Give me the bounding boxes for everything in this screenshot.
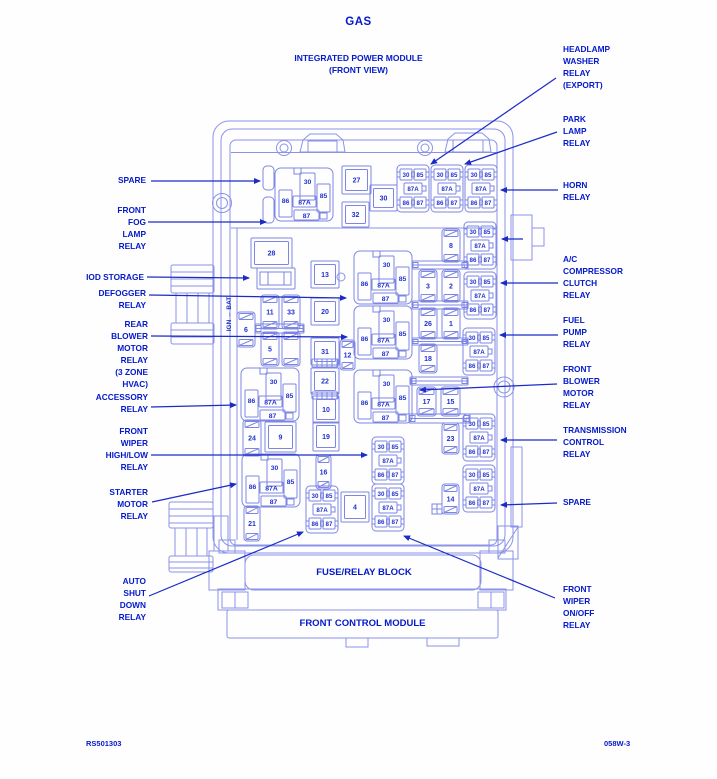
drawing-number-left: RS501303 [86, 739, 121, 748]
screw-icon [418, 141, 433, 156]
blade-fuse-26: 26 [419, 308, 437, 339]
fuse-number: 18 [424, 356, 432, 363]
front-control-module-label: FRONT CONTROL MODULE [227, 618, 498, 629]
label-text: LAMP [563, 126, 587, 136]
bottom-assembly [209, 540, 513, 647]
label-text: DEFOGGER [99, 288, 146, 298]
pin-label: 30 [437, 172, 444, 179]
pin-label: 30 [469, 335, 476, 342]
fuse-number: 2 [449, 283, 453, 290]
fuse-number: 23 [447, 436, 455, 443]
fuse-box-diagram: 2732302813203122101994113365832261181715… [0, 0, 717, 779]
label-text: FUEL [563, 315, 585, 325]
pin-label: 87A [473, 349, 485, 356]
relay-label-iod-storage: IOD STORAGE [86, 272, 144, 282]
label-text: HORN [563, 180, 587, 190]
leader-auto-shut-down-relay [149, 532, 303, 596]
label-text: RELAY [119, 241, 147, 251]
mini-relay-1: 308687A8587 [275, 168, 333, 221]
label-text: RELAY [563, 290, 591, 300]
pin-label: 87 [382, 351, 390, 358]
pin-label: 85 [392, 491, 399, 498]
connector-neck [176, 293, 209, 323]
pin-label: 86 [471, 200, 478, 207]
fuse-number: 19 [322, 434, 330, 441]
pin-label: 87 [269, 413, 277, 420]
leader-defogger-relay [149, 295, 346, 298]
label-text: MOTOR [117, 343, 148, 353]
relay-label-defogger-relay: DEFOGGERRELAY [99, 288, 147, 310]
pin-label: 87A [264, 400, 277, 407]
label-text: RELAY [563, 400, 591, 410]
mini-relay-5: 308687A8587 [241, 368, 299, 421]
interior-components: 2732302813203122101994113365832261181715… [226, 165, 497, 541]
label-text: RELAY [563, 620, 591, 630]
pin-label: 85 [484, 279, 491, 286]
label-text: TRANSMISSION [563, 425, 627, 435]
label-text: COMPRESSOR [563, 266, 623, 276]
label-text: MOTOR [563, 388, 594, 398]
blade-fuse-23: 23 [442, 423, 459, 454]
label-text: HIGH/LOW [106, 450, 149, 460]
pin-label: 86 [437, 200, 444, 207]
pin-label: 87 [483, 500, 490, 507]
pin-label: 87 [270, 499, 278, 506]
end-bracket [209, 551, 245, 590]
square-fuse-28: 28 [251, 238, 292, 268]
pin-label: 86 [249, 484, 257, 491]
pin-label: 30 [470, 279, 477, 286]
ribbed-connector [169, 556, 213, 572]
pin-label: 30 [383, 262, 391, 269]
fuse-number: 24 [248, 435, 256, 442]
fuse-number: 31 [321, 349, 329, 356]
ribbed-connector [171, 323, 214, 344]
pin-label: 86 [378, 519, 385, 526]
pin-label: 30 [403, 172, 410, 179]
label-text: PARK [563, 114, 586, 124]
top-tab [300, 134, 345, 152]
label-text: SPARE [118, 175, 146, 185]
fuse-number: 8 [449, 243, 453, 250]
square-fuse-32: 32 [342, 202, 369, 227]
pin-label: 87 [303, 213, 311, 220]
spare-slot [263, 166, 274, 190]
pin-label: 30 [312, 493, 319, 500]
label-text: SPARE [563, 497, 591, 507]
pin-label: 87A [316, 507, 328, 514]
blade-fuse-17: 17 [417, 387, 436, 416]
label-text: FRONT [119, 426, 148, 436]
pin-label: 87 [483, 449, 490, 456]
pin-label: 85 [326, 493, 333, 500]
bus-bar [410, 377, 468, 385]
leader-accessory-relay [151, 405, 236, 407]
pin-label: 85 [483, 472, 490, 479]
pin-label: 85 [399, 276, 407, 283]
micro-relay-4: 308587A8687 [464, 222, 496, 269]
label-text: CLUTCH [563, 278, 597, 288]
micro-relay-1: 308587A8687 [397, 165, 429, 212]
pin-label: 30 [470, 229, 477, 236]
pin-label: 87 [485, 200, 492, 207]
blade-fuse-21: 21 [244, 506, 260, 541]
pin-label: 85 [392, 444, 399, 451]
pin-label: 86 [361, 336, 369, 343]
pin-label: 87 [392, 472, 399, 479]
square-fuse-22: 22 [311, 368, 339, 394]
blade-fuse-16: 16 [316, 455, 331, 489]
pin-label: 86 [469, 363, 476, 370]
mini-relay-2: 308687A8587 [354, 251, 412, 304]
label-text: BLOWER [563, 376, 600, 386]
label-text: REAR [124, 319, 148, 329]
page-title: GAS [0, 16, 717, 28]
fuse-number: 27 [353, 178, 361, 185]
pin-label: 87 [451, 200, 458, 207]
pin-label: 86 [312, 521, 319, 528]
screw-icon [421, 144, 429, 152]
pin-label: 30 [469, 472, 476, 479]
pin-label: 87 [417, 200, 424, 207]
mini-relay-6: 308687A8587 [242, 454, 300, 507]
pin-label: 30 [378, 491, 385, 498]
blade-fuse-2: 2 [442, 270, 460, 302]
pin-label: 30 [271, 465, 279, 472]
square-fuse-9: 9 [265, 422, 296, 452]
pin-label: 30 [304, 179, 312, 186]
relay-label-ac-compressor-clutch: A/CCOMPRESSORCLUTCHRELAY [563, 254, 623, 300]
pin-label: 30 [383, 381, 391, 388]
pin-label: 87A [377, 402, 390, 409]
subtitle-line1: INTEGRATED POWER MODULE [0, 53, 717, 63]
label-text: FRONT [563, 584, 592, 594]
pin-label: 30 [471, 172, 478, 179]
pin-label: 30 [270, 379, 278, 386]
fuse-number: 13 [321, 272, 329, 279]
fuse-number: 22 [321, 379, 329, 386]
label-text: IOD STORAGE [86, 272, 144, 282]
pin-label: 87 [484, 307, 491, 314]
pin-label: 87A [441, 186, 453, 193]
leader-iod-storage [147, 277, 249, 278]
blade-fuse-14: 14 [442, 484, 459, 514]
label-text: CONTROL [563, 437, 604, 447]
relay-label-horn-relay: HORNRELAY [563, 180, 591, 202]
pin-label: 85 [399, 395, 407, 402]
pin-label: 87A [474, 243, 486, 250]
pin-label: 85 [399, 331, 407, 338]
blade-fuse-1: 1 [442, 308, 460, 339]
square-fuse-13: 13 [311, 261, 339, 288]
relay-label-front-blower-motor: FRONTBLOWERMOTORRELAY [563, 364, 600, 410]
blade-fuse-18: 18 [419, 344, 437, 373]
fuse-number: 10 [322, 407, 330, 414]
spare-slot [263, 197, 274, 223]
blade-fuse-8: 8 [442, 229, 460, 262]
pin-label: 87 [382, 296, 390, 303]
blade-fuse-12: 12 [340, 340, 355, 370]
square-fuse-30: 30 [370, 185, 397, 211]
leader-starter-motor-relay [152, 484, 236, 502]
pin-label: 86 [470, 307, 477, 314]
pin-label: 86 [361, 281, 369, 288]
mount-tab [511, 215, 532, 260]
label-text: FOG [128, 217, 146, 227]
label-text: RELAY [121, 511, 149, 521]
label-text: ON/OFF [563, 608, 594, 618]
label-text: STARTER [109, 487, 148, 497]
relay-label-fuel-pump-relay: FUELPUMPRELAY [563, 315, 591, 349]
micro-relay-9: 308587A8687 [372, 437, 404, 484]
pin-label: 85 [484, 229, 491, 236]
pin-label: 85 [287, 479, 295, 486]
relay-label-transmission-control: TRANSMISSIONCONTROLRELAY [563, 425, 627, 459]
micro-relay-5: 308587A8687 [464, 272, 496, 319]
blade-fuse-3: 3 [419, 270, 437, 302]
label-text: PUMP [563, 327, 587, 337]
micro-relay-3: 308587A8687 [465, 165, 497, 212]
square-fuse-4: 4 [341, 492, 369, 522]
fuse-number: 11 [266, 309, 274, 316]
screw-icon [213, 194, 232, 213]
pin-label: 30 [383, 317, 391, 324]
label-text: AUTO [123, 576, 147, 586]
mini-relay-3: 308687A8587 [354, 306, 412, 359]
ign-bat-label: IGN ↔ BAT [226, 297, 233, 332]
bus-bar [412, 261, 468, 269]
label-text: WIPER [563, 596, 590, 606]
relay-label-accessory-relay: ACCESSORYRELAY [96, 392, 149, 414]
relay-label-spare-right: SPARE [563, 497, 591, 507]
fuse-number: 5 [268, 346, 272, 353]
screw-icon [280, 144, 288, 152]
pin-label: 86 [248, 398, 256, 405]
micro-relay-11: 308587A8687 [372, 484, 404, 531]
pin-label: 85 [485, 172, 492, 179]
pin-label: 87A [474, 293, 486, 300]
leader-lines [147, 78, 558, 598]
label-text: FRONT [563, 364, 592, 374]
pin-label: 86 [361, 400, 369, 407]
blade-fuse-6: 6 [237, 312, 255, 347]
leader-spare-right [501, 503, 557, 505]
iod-storage-connector [257, 268, 295, 289]
screw-icon [217, 198, 228, 209]
fuse-number: 3 [426, 283, 430, 290]
mini-relay-4: 308687A8587 [354, 370, 412, 423]
square-fuse-10: 10 [313, 396, 339, 423]
small-circle [337, 273, 345, 281]
pin-label: 87A [407, 186, 419, 193]
label-text: RELAY [563, 192, 591, 202]
square-fuse-27: 27 [342, 166, 371, 194]
label-text: LAMP [122, 229, 146, 239]
label-text: WIPER [121, 438, 148, 448]
drawing-number-right: 058W-3 [604, 739, 630, 748]
pin-label: 86 [469, 500, 476, 507]
pin-label: 87 [483, 363, 490, 370]
pin-label: 85 [483, 421, 490, 428]
interface-strip [218, 589, 506, 610]
label-text: HVAC) [122, 379, 148, 389]
pin-label: 86 [469, 449, 476, 456]
label-text: RELAY [121, 462, 149, 472]
cross-box [432, 504, 442, 514]
ribbed-strip [312, 359, 338, 367]
micro-relay-8: 308587A8687 [463, 465, 495, 512]
pin-label: 87A [382, 505, 394, 512]
label-text: FRONT [117, 205, 146, 215]
pin-label: 86 [378, 472, 385, 479]
relay-label-front-wiper-highlow: FRONTWIPERHIGH/LOWRELAY [106, 426, 149, 472]
label-text: MOTOR [117, 499, 148, 509]
pin-label: 85 [417, 172, 424, 179]
pin-label: 86 [470, 257, 477, 264]
fuse-number: 16 [320, 469, 328, 476]
pin-label: 85 [286, 393, 294, 400]
label-text: ACCESSORY [96, 392, 149, 402]
screw-icon [277, 141, 292, 156]
fuse-number: 14 [447, 496, 455, 503]
pin-label: 85 [483, 335, 490, 342]
fuse-number: 15 [447, 399, 455, 406]
connector-neck [175, 528, 207, 556]
pin-label: 86 [282, 198, 290, 205]
label-text: (3 ZONE [115, 367, 148, 377]
label-text: RELAY [119, 612, 147, 622]
label-text: RELAY [563, 138, 591, 148]
fuse-number: 12 [344, 352, 352, 359]
fuse-number: 28 [268, 251, 276, 258]
relay-label-front-fog-lamp-relay: FRONTFOGLAMPRELAY [117, 205, 146, 251]
pin-label: 87 [382, 415, 390, 422]
label-text: (EXPORT) [563, 80, 603, 90]
label-text: BLOWER [111, 331, 148, 341]
micro-relay-2: 308587A8687 [431, 165, 463, 212]
relay-label-auto-shut-down-relay: AUTOSHUTDOWNRELAY [119, 576, 147, 622]
square-fuse-19: 19 [313, 422, 339, 451]
pin-label: 86 [403, 200, 410, 207]
label-text: RELAY [563, 339, 591, 349]
relay-label-starter-motor-relay: STARTERMOTORRELAY [109, 487, 148, 521]
pin-label: 87 [326, 521, 333, 528]
pin-label: 87A [382, 458, 394, 465]
pin-label: 87A [473, 486, 485, 493]
pin-label: 87A [473, 435, 485, 442]
fuse-number: 6 [244, 327, 248, 334]
label-text: RELAY [119, 300, 147, 310]
micro-relay-6: 308587A8687 [463, 328, 495, 375]
blade-fuse-15: 15 [441, 387, 460, 416]
micro-relay-10: 308587A8687 [306, 486, 338, 533]
pin-label: 87A [377, 283, 390, 290]
label-text: RELAY [563, 449, 591, 459]
fuse-number: 1 [449, 321, 453, 328]
pin-label: 87 [392, 519, 399, 526]
end-bracket [480, 551, 513, 590]
label-text: DOWN [120, 600, 146, 610]
pin-label: 87A [298, 200, 311, 207]
fuse-number: 32 [352, 212, 360, 219]
subtitle-line2: (FRONT VIEW) [0, 65, 717, 75]
fuse-number: 17 [423, 399, 431, 406]
page: 2732302813203122101994113365832261181715… [0, 0, 717, 779]
fuse-number: 4 [353, 505, 357, 512]
square-fuse-20: 20 [311, 298, 339, 325]
fuse-number: 21 [248, 521, 256, 528]
label-text: RELAY [121, 404, 149, 414]
pin-label: 87 [484, 257, 491, 264]
fuse-number: 26 [424, 321, 432, 328]
relay-label-spare-left: SPARE [118, 175, 146, 185]
fuse-number: 9 [279, 435, 283, 442]
blade-fuse-24: 24 [243, 420, 261, 456]
pin-label: 87A [265, 486, 278, 493]
relay-label-front-wiper-onoff: FRONTWIPERON/OFFRELAY [563, 584, 594, 630]
relay-label-rear-blower-motor: REARBLOWERMOTORRELAY(3 ZONEHVAC) [111, 319, 148, 389]
ribbed-connector [169, 502, 213, 528]
label-text: A/C [563, 254, 577, 264]
foot [346, 638, 368, 647]
pin-label: 85 [451, 172, 458, 179]
label-text: RELAY [121, 355, 149, 365]
foot [427, 638, 459, 646]
fuse-number: 20 [321, 309, 329, 316]
fuse-relay-block-label: FUSE/RELAY BLOCK [246, 567, 482, 578]
pin-label: 87A [475, 186, 487, 193]
label-text: SHUT [123, 588, 146, 598]
fuse-number: 30 [380, 196, 388, 203]
pin-label: 30 [378, 444, 385, 451]
pin-label: 85 [320, 193, 328, 200]
pin-label: 87A [377, 338, 390, 345]
relay-label-park-lamp-relay: PARKLAMPRELAY [563, 114, 591, 148]
leader-park-lamp-relay [465, 132, 557, 164]
square-fuse-31: 31 [311, 338, 339, 365]
fuse-number: 33 [287, 309, 295, 316]
